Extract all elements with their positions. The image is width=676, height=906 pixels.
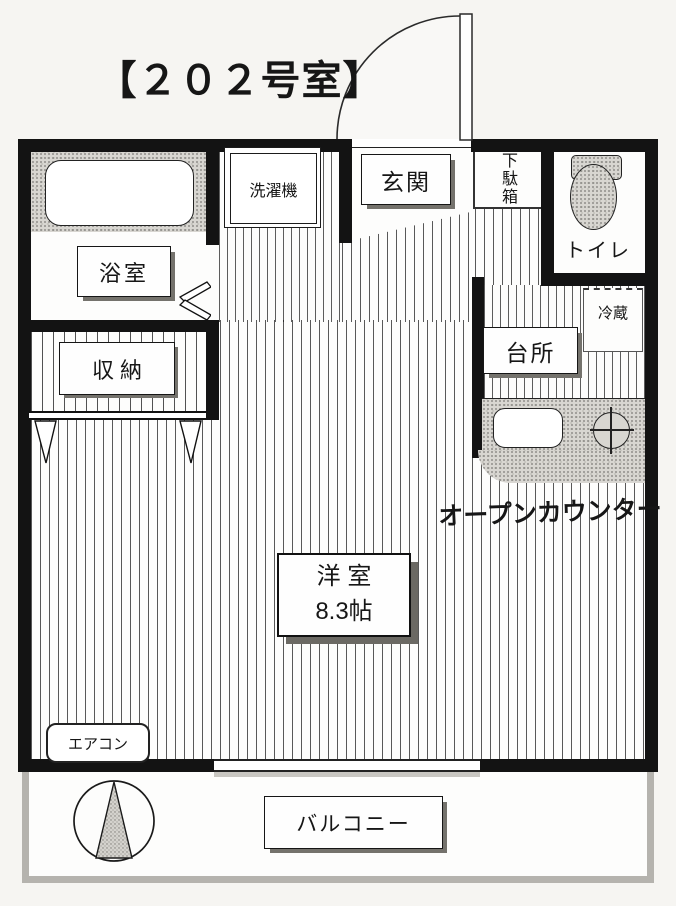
page-title: 【２０２号室】 (112, 48, 368, 106)
bathroom-label-text: 浴室 (99, 256, 149, 288)
refrigerator-space: 冷蔵 (583, 288, 643, 352)
washing-machine: 洗濯機 (230, 153, 317, 224)
folding-door-icon (177, 281, 211, 321)
bathroom-label: 浴室 (77, 246, 171, 297)
aircon-unit: エアコン (46, 723, 150, 763)
window-sill-line (214, 772, 480, 777)
refrigerator-label: 冷蔵 (598, 302, 628, 351)
shoebox-label: 下駄箱 (488, 146, 526, 212)
washing-machine-label: 洗濯機 (249, 177, 297, 201)
toilet-bowl (570, 164, 617, 230)
wall-left (18, 139, 31, 772)
wall-bathroom-divider (206, 139, 219, 245)
wall-right (645, 139, 658, 772)
closet-label-text: 収 納 (92, 353, 142, 385)
toilet-label-text: トイレ (565, 234, 631, 263)
hanger-icon (33, 420, 58, 465)
kitchen-label-text: 台所 (506, 334, 556, 368)
entrance-label: 玄関 (361, 154, 451, 205)
hanger-icon (178, 420, 203, 465)
balcony-window (214, 759, 480, 772)
western-room-size: 8.3帖 (315, 595, 372, 630)
kitchen-label: 台所 (483, 327, 578, 374)
open-counter-label-text: オープンカウンター (438, 489, 663, 533)
floor-plan-room-202: 【２０２号室】 浴室 洗濯機 玄関 下駄箱 トイレ 冷蔵 台所 (0, 0, 676, 906)
closet-front-rail (29, 411, 206, 420)
compass-north-icon (70, 779, 158, 865)
western-room-name: 洋 室 (317, 560, 372, 595)
entrance-label-text: 玄関 (381, 163, 431, 197)
washing-machine-pan: 洗濯機 (224, 147, 321, 228)
wall-bottom-right (480, 759, 658, 772)
open-counter-bar (478, 450, 645, 483)
stove-cross-v (610, 407, 612, 454)
closet-label: 収 納 (59, 342, 175, 395)
balcony-label: バルコニー (264, 796, 443, 849)
wall-toilet-bottom (541, 273, 658, 286)
stove-cross-h (590, 429, 634, 431)
bathtub (45, 160, 194, 226)
aircon-label: エアコン (68, 733, 128, 754)
toilet-label: トイレ (550, 234, 646, 262)
wall-closet-top (18, 320, 218, 332)
kitchen-sink (493, 408, 563, 448)
open-counter-label: オープンカウンター (436, 485, 663, 537)
wall-closet-right (206, 320, 219, 420)
balcony-label-text: バルコニー (296, 808, 411, 838)
western-room-label: 洋 室 8.3帖 (277, 553, 411, 637)
shoebox-label-text: 下駄箱 (495, 152, 519, 206)
wall-entrance-left (339, 139, 352, 243)
